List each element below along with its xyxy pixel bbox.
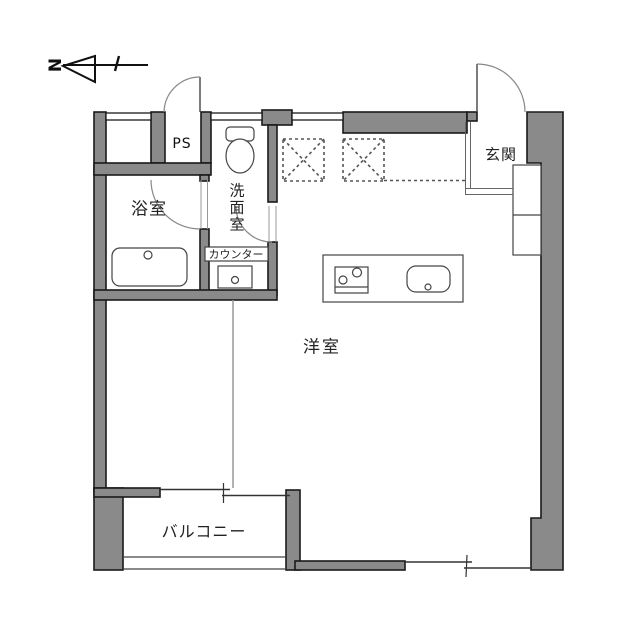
- room-label-balcony: バルコニー: [162, 518, 247, 542]
- room-label-counter: カウンター: [209, 246, 264, 262]
- wall-ps-bottom: [94, 163, 211, 175]
- bottom-sliding-window: [405, 555, 531, 577]
- kitchen-island-icon: [323, 255, 463, 302]
- wall-ps-left: [151, 112, 165, 163]
- wall-ps-right: [201, 112, 211, 163]
- room-label-washroom: 洗面室: [229, 183, 244, 234]
- wall-top-thick: [343, 112, 467, 133]
- balcony-sliding-door: [160, 483, 290, 503]
- bathtub-icon: [112, 248, 187, 286]
- wall-bottom: [295, 561, 405, 570]
- balcony-railing: [123, 557, 286, 569]
- north-arrow-icon: [63, 56, 148, 82]
- room-label-main-room: 洋室: [303, 333, 341, 358]
- wall-top-jamb: [467, 112, 477, 121]
- stove-icon: [335, 267, 368, 293]
- room-label-entrance: 玄関: [485, 144, 517, 165]
- window-top-toilet: [211, 113, 262, 120]
- room-label-ps: PS: [172, 136, 191, 152]
- wall-balcony-left: [94, 488, 123, 570]
- wall-balcony-top-stub: [94, 488, 160, 497]
- floor-plan-drawing: [0, 0, 640, 640]
- wall-bath-bottom: [94, 290, 277, 300]
- entrance-door: [477, 64, 525, 112]
- wall-washroom-top-jamb: [262, 110, 292, 125]
- overhead-storage-dashed: [283, 139, 465, 181]
- shoe-cabinet-icon: [513, 165, 541, 255]
- window-top-left: [106, 113, 151, 120]
- ps-door: [164, 77, 200, 112]
- wall-balcony-right: [286, 490, 300, 570]
- north-label: N: [46, 58, 66, 72]
- floor-plan: N PS 浴室 洗面室 カウンター 玄関 洋室 バルコニー: [0, 0, 640, 640]
- wall-bath-wash-lower: [200, 229, 209, 295]
- window-top-kitchen: [292, 113, 343, 120]
- kitchen-sink-icon: [407, 266, 450, 292]
- wall-washroom-right-lower: [268, 242, 277, 295]
- toilet-icon: [226, 127, 254, 173]
- room-label-bathroom: 浴室: [131, 195, 167, 220]
- top-wall-windows: [106, 113, 343, 120]
- wall-washroom-right-upper: [268, 125, 277, 202]
- fixtures: [112, 127, 541, 302]
